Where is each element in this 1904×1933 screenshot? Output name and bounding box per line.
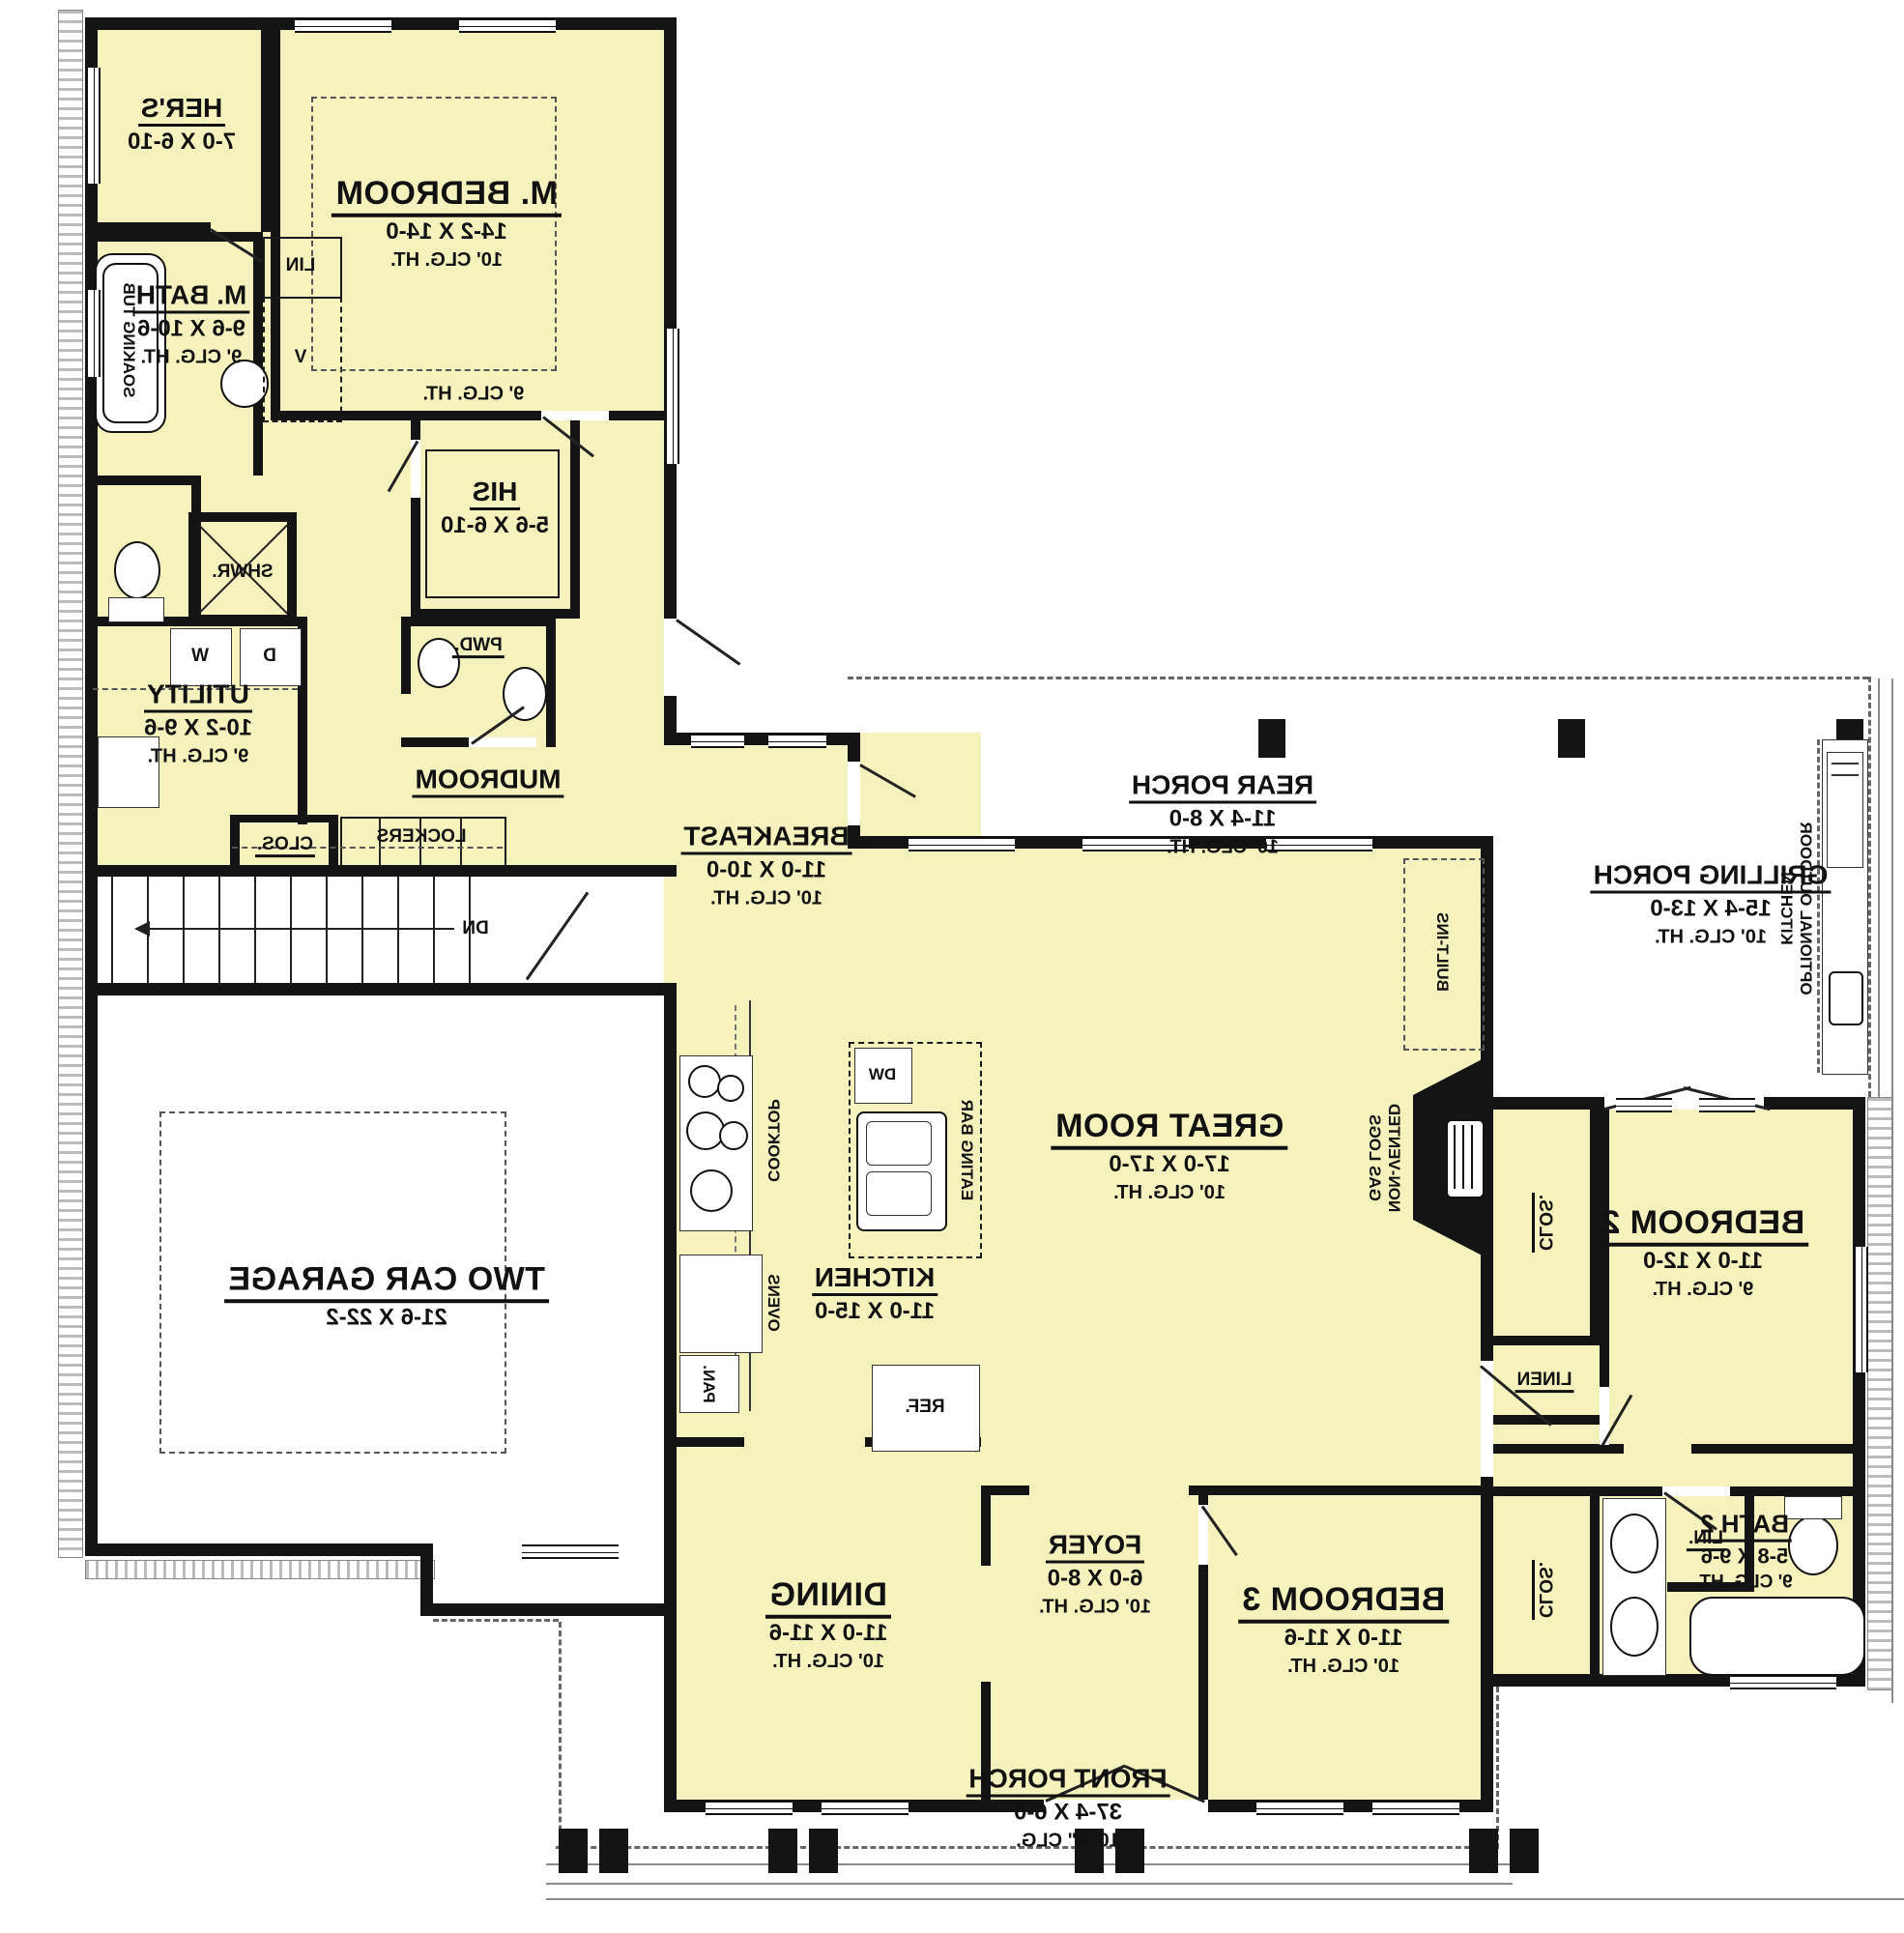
label-washer: W — [191, 645, 209, 668]
window — [909, 837, 1015, 851]
toilet-icon — [1788, 1515, 1838, 1575]
window — [1854, 1247, 1868, 1372]
window — [86, 290, 101, 377]
label-dining: DINING 11-0 X 11-6 10' CLG. HT. — [765, 1574, 891, 1674]
label-built-ins: BUILT-INS — [1432, 912, 1452, 992]
label-pan: PAN. — [699, 1365, 718, 1402]
porch-step-line — [546, 1883, 1513, 1885]
front-porch-roofline-left — [559, 1622, 562, 1849]
window — [706, 1801, 793, 1815]
window — [295, 18, 391, 33]
siding-hatch-garage-bottom — [85, 1560, 435, 1579]
porch-column — [559, 1829, 588, 1873]
porch-column — [1510, 1829, 1539, 1873]
label-mbed: M. BEDROOM 14-2 X 14-0 10' CLG. HT. — [332, 173, 562, 273]
toilet-icon — [503, 667, 547, 721]
label-rear-porch: REAR PORCH 11-4 X 8-0 10' CLG. HT. — [1129, 768, 1316, 860]
garage-porch-dash — [433, 1619, 559, 1622]
window — [1730, 1675, 1836, 1689]
fireplace-logs — [1446, 1119, 1485, 1198]
window — [822, 1801, 909, 1815]
window — [459, 18, 556, 33]
porch-column — [1469, 1829, 1498, 1873]
grill-icon — [1827, 752, 1863, 868]
window — [691, 734, 744, 748]
label-ref: REF. — [905, 1396, 944, 1419]
porch-column — [768, 1829, 797, 1873]
label-lockers: LOCKERS — [377, 825, 467, 849]
bathtub-icon — [1689, 1597, 1865, 1676]
label-garage: TWO CAR GARAGE 21-6 X 22-2 — [224, 1258, 549, 1332]
window — [1256, 1801, 1343, 1815]
label-shwr: SHWR. — [212, 561, 273, 584]
label-hall-ceiling: 9' CLG. HT. — [423, 383, 525, 407]
label-bed3: BEDROOM 3 11-0 X 11-6 10' CLG. HT. — [1238, 1579, 1449, 1679]
porch-column — [809, 1829, 838, 1873]
label-linen: LINEN — [1515, 1369, 1574, 1392]
label-eating-bar: EATING BAR — [957, 1100, 976, 1201]
siding-hatch-right — [1867, 1097, 1892, 1690]
sink-icon — [1610, 1514, 1659, 1573]
porch-column — [599, 1829, 628, 1873]
label-bath2: BATH 2 5-8 X 9-6 9' CLG. HT. — [1696, 1509, 1793, 1595]
stair-direction-line — [150, 928, 454, 930]
label-ovens: OVENS — [764, 1274, 783, 1332]
window — [86, 68, 101, 184]
label-dryer: D — [263, 645, 276, 668]
label-front-porch: FRONT PORCH 37-4 X 6-0 10'-0" CLG. — [966, 1762, 1169, 1854]
label-clos-bed3: CLOS. — [1534, 1560, 1555, 1620]
rear-porch-roofline — [848, 677, 1868, 679]
front-porch-roofline-right — [1496, 1687, 1499, 1849]
toilet-tank — [108, 597, 164, 622]
window — [665, 329, 679, 464]
label-breakfast: BREAKFAST 11-0 X 10-0 10' CLG. HT. — [680, 820, 851, 911]
label-her: HER'S 7-0 X 6-10 — [128, 91, 236, 157]
siding-hatch-left — [58, 10, 83, 1558]
window — [1616, 1098, 1672, 1112]
label-kitchen: KITCHEN 11-0 X 15-0 — [812, 1260, 938, 1326]
ovens-box — [679, 1255, 763, 1353]
porch-step-line — [546, 1863, 1513, 1865]
kitchen-sink-icon — [856, 1111, 947, 1231]
porch-column — [1558, 719, 1585, 758]
window — [1699, 1098, 1755, 1112]
window — [768, 734, 826, 748]
label-clos-mud: CLOS. — [255, 833, 315, 856]
outdoor-sink-icon — [1829, 971, 1863, 1025]
label-his: HIS 5-6 X 6-10 — [441, 475, 549, 540]
floor-plan: HER'S 7-0 X 6-10 M. BEDROOM 14-2 X 14-0 … — [0, 0, 1904, 1933]
label-clos-bed2: CLOS. — [1534, 1193, 1555, 1253]
stair-treads — [111, 877, 503, 983]
label-soaking-tub: SOAKING TUB — [119, 283, 138, 398]
label-dn: DN — [462, 917, 488, 940]
label-outdoor-kitchen: OPTIONAL OUTDOOR KITCHEN — [1776, 822, 1815, 995]
window — [1372, 1801, 1459, 1815]
stair-arrow — [134, 921, 150, 937]
label-gas-logs: NON-VENTED GAS LOGS — [1365, 1104, 1403, 1212]
label-vanity: V — [295, 346, 307, 369]
sink-icon — [1610, 1597, 1659, 1657]
toilet-tank — [1784, 1496, 1842, 1519]
porch-step-line — [546, 1898, 1904, 1900]
label-foyer: FOYER 6-0 X 8-0 10' CLG. HT. — [1039, 1528, 1151, 1620]
label-pwd: PWD. — [452, 634, 505, 657]
label-cooktop: COOKTOP — [764, 1099, 783, 1182]
label-mbath: M. BATH 9-6 X 10-6 9' CLG. HT. — [133, 278, 250, 370]
label-bed2: BEDROOM 2 11-0 X 12-0 9' CLG. HT. — [1598, 1202, 1808, 1302]
label-lin: LIN — [286, 254, 316, 277]
right-porch-roofline — [1868, 677, 1871, 1097]
label-mudroom: MUDROOM — [413, 763, 564, 796]
label-utility: UTILITY 10-2 X 9-6 9' CLG. HT. — [144, 678, 252, 769]
toilet-icon — [114, 541, 160, 599]
porch-column — [1258, 719, 1285, 758]
label-dw: DW — [869, 1064, 896, 1085]
label-great-room: GREAT ROOM 17-0 X 17-0 10' CLG. HT. — [1052, 1106, 1288, 1205]
window — [522, 1544, 619, 1559]
